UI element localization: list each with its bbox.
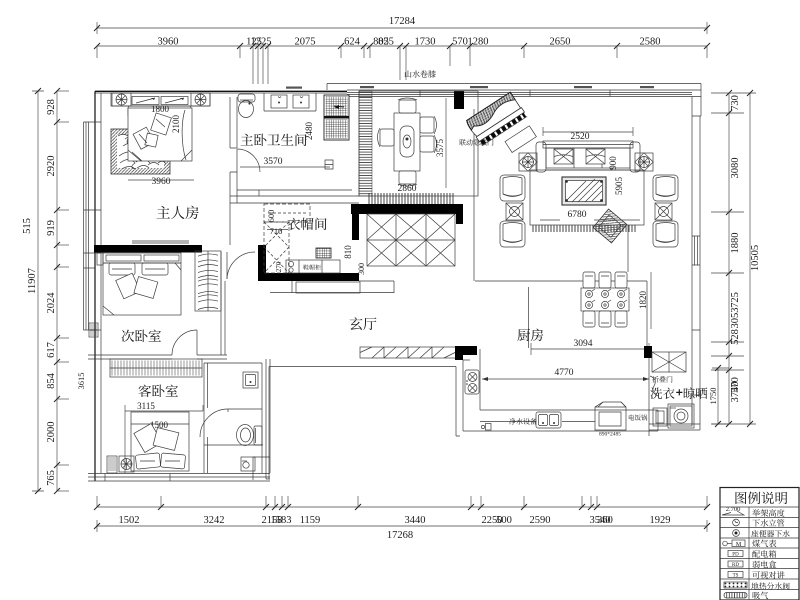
svg-text:3440: 3440 (405, 515, 426, 526)
svg-text:890*2485: 890*2485 (599, 432, 621, 438)
svg-text:17284: 17284 (389, 16, 416, 27)
svg-text:900: 900 (608, 156, 618, 170)
svg-text:M: M (736, 542, 742, 548)
svg-text:3570: 3570 (264, 157, 283, 167)
svg-text:6780: 6780 (568, 210, 587, 220)
svg-text:2860: 2860 (398, 184, 417, 194)
svg-text:1280: 1280 (468, 37, 489, 48)
svg-text:528: 528 (730, 329, 741, 345)
svg-text:810: 810 (343, 245, 353, 259)
svg-text:3115: 3115 (137, 401, 155, 411)
svg-text:3053: 3053 (730, 308, 741, 329)
svg-text:854: 854 (46, 372, 57, 389)
svg-text:5905: 5905 (614, 177, 624, 196)
svg-text:125: 125 (246, 37, 262, 48)
svg-text:3094: 3094 (574, 339, 593, 349)
svg-text:11907: 11907 (27, 268, 38, 294)
svg-text:3575: 3575 (435, 139, 445, 158)
svg-text:2100: 2100 (171, 115, 181, 134)
svg-text:1800: 1800 (151, 104, 170, 114)
svg-text:1880: 1880 (730, 233, 741, 254)
svg-text:919: 919 (46, 220, 57, 236)
svg-text:710: 710 (270, 226, 283, 236)
svg-text:1730: 1730 (415, 37, 436, 48)
svg-text:1820: 1820 (638, 291, 648, 310)
svg-text:765: 765 (46, 470, 57, 486)
svg-text:3242: 3242 (204, 515, 225, 526)
svg-text:624: 624 (344, 37, 361, 48)
svg-text:928: 928 (46, 99, 57, 115)
svg-text:500: 500 (496, 515, 512, 526)
svg-text:3960: 3960 (152, 177, 171, 187)
svg-text:3960: 3960 (158, 37, 179, 48)
svg-text:725: 725 (730, 292, 741, 308)
svg-text:1583: 1583 (271, 515, 292, 526)
svg-text:PD: PD (732, 553, 739, 558)
svg-text:TS: TS (733, 574, 739, 579)
svg-text:1159: 1159 (300, 515, 321, 526)
svg-text:2000: 2000 (46, 422, 57, 443)
svg-text:2075: 2075 (295, 37, 316, 48)
svg-text:2650: 2650 (550, 37, 571, 48)
svg-text:570: 570 (730, 377, 741, 393)
svg-text:2480: 2480 (304, 122, 314, 141)
svg-text:570: 570 (452, 37, 468, 48)
svg-text:RD: RD (732, 563, 739, 568)
svg-text:300: 300 (357, 263, 366, 275)
svg-text:1929: 1929 (650, 515, 671, 526)
svg-text:730: 730 (730, 95, 741, 111)
svg-text:17268: 17268 (387, 530, 413, 541)
svg-text:600: 600 (266, 210, 276, 223)
svg-text:515: 515 (22, 218, 33, 234)
svg-text:2920: 2920 (46, 156, 57, 177)
svg-text:617: 617 (46, 342, 57, 358)
svg-text:10505: 10505 (750, 245, 761, 271)
svg-text:3080: 3080 (730, 158, 741, 179)
svg-text:2520: 2520 (571, 132, 590, 142)
svg-text:3615: 3615 (76, 373, 86, 390)
svg-text:2.700: 2.700 (726, 506, 741, 513)
svg-text:1750: 1750 (708, 388, 718, 405)
svg-text:805: 805 (373, 37, 389, 48)
svg-text:2580: 2580 (640, 37, 661, 48)
svg-text:2590: 2590 (530, 515, 551, 526)
svg-text:1502: 1502 (119, 515, 140, 526)
svg-text:360: 360 (597, 515, 613, 526)
svg-text:4770: 4770 (555, 368, 574, 378)
svg-text:2024: 2024 (46, 292, 57, 314)
